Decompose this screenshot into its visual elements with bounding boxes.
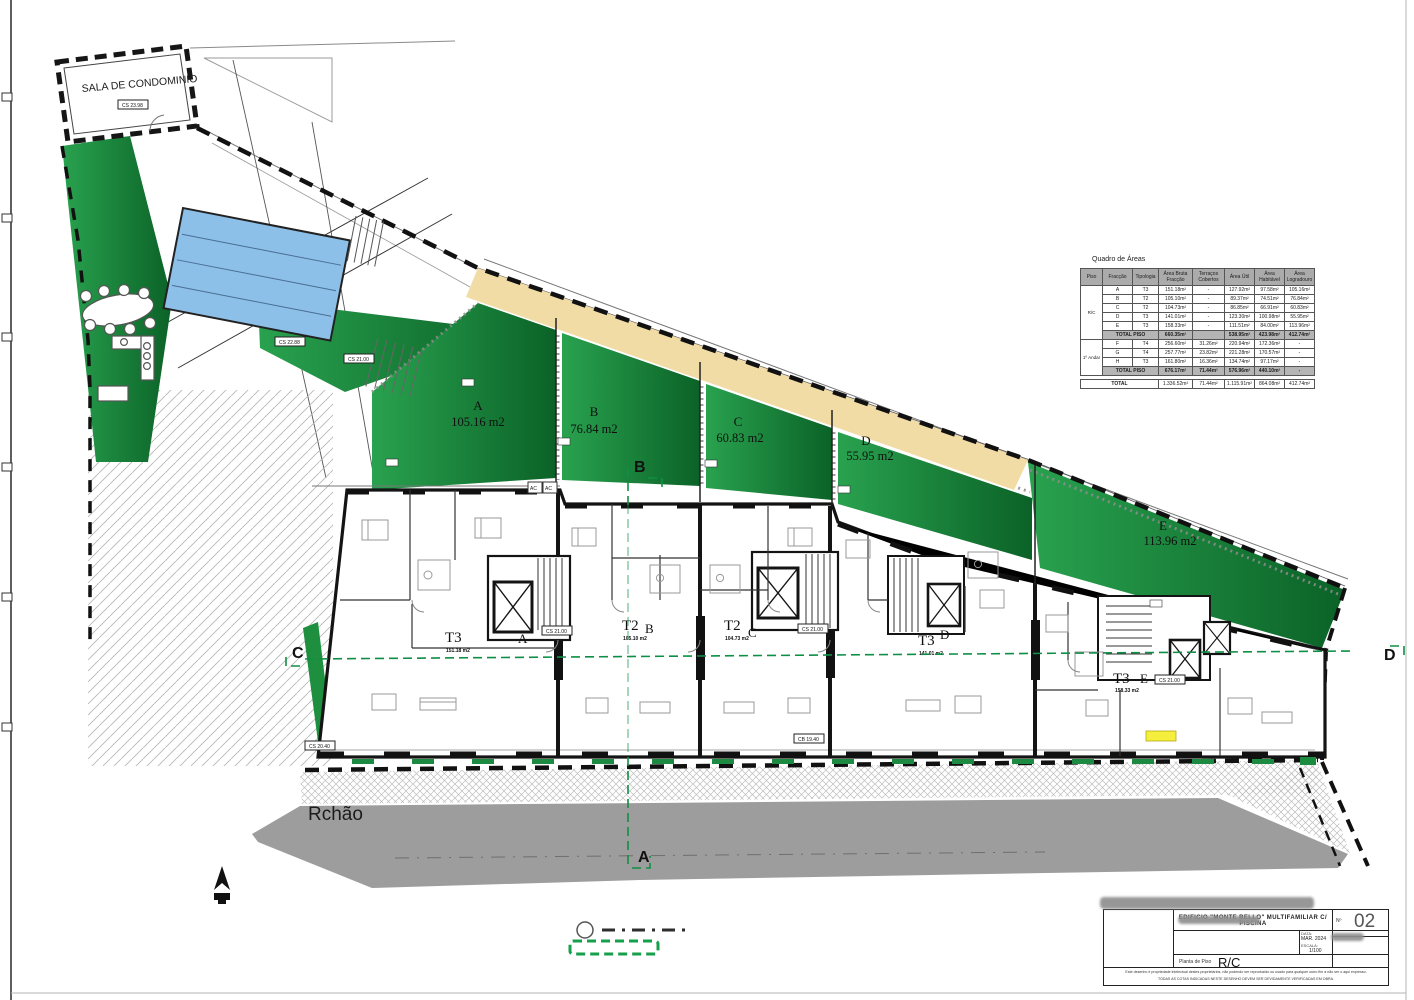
legend-circle-symbol [577,922,593,938]
condo-room: SALA DE CONDOMINIO [57,46,198,142]
highlight-yellow [1146,731,1176,741]
areas-header-cell: Terraços Cobertos [1193,269,1225,286]
areas-cell: 113.96m² [1285,322,1315,331]
areas-cell: 676.17m² [1159,367,1193,376]
areas-cell: 220.94m² [1225,340,1255,349]
unit-d-type: T3 [918,633,935,649]
areas-cell: C [1103,304,1133,313]
areas-cell: B [1103,295,1133,304]
areas-header-cell: Fracção [1103,269,1133,286]
areas-cell: - [1285,340,1315,349]
total-row: TOTAL PISO676.17m²71.44m²576.96m²440.10m… [1081,367,1315,376]
areas-cell: 412.74m² [1285,331,1315,340]
drawing-type-label: Planta de Piso [1179,959,1211,965]
table-row: HT3161.80m²16.36m²134.74m²97.17m²- [1081,358,1315,367]
areas-cell: 23.82m² [1193,349,1225,358]
areas-cell: 134.74m² [1225,358,1255,367]
garden-e-area: 113.96 m2 [1143,534,1196,548]
garden-d-area: 55.95 m2 [846,449,893,463]
areas-cell: 538.95m² [1225,331,1255,340]
street-label: Rchão [308,804,363,825]
table-row: CT2104.73m²-86.85m²66.91m²60.83m² [1081,304,1315,313]
unit-c-letter: C [748,625,757,640]
legend-planter-symbol [570,941,658,954]
areas-cell: T3 [1133,286,1159,295]
areas-cell: 86.85m² [1225,304,1255,313]
areas-cell: 123.30m² [1225,313,1255,322]
table-row: R/CAT3151.18m²-127.92m²97.58m²105.16m² [1081,286,1315,295]
piso-cell: R/C [1081,286,1103,340]
areas-cell: 111.51m² [1225,322,1255,331]
areas-cell: G [1103,349,1133,358]
unit-c-area: 104.73 m2 [725,636,749,642]
smudge-blob [1178,916,1260,924]
garden-c-letter: C [734,414,743,429]
areas-header-cell: Área Útil [1225,269,1255,286]
garden-d-letter: D [861,433,870,448]
areas-cell: - [1193,322,1225,331]
areas-header-cell: Área Bruta Fracção [1159,269,1193,286]
ac-label-2: AC [545,486,552,492]
piso-cell: 1º Andar [1081,340,1103,376]
areas-cell: 170.57m² [1255,349,1285,358]
areas-grand-total: TOTAL1.336.52m²71.44m²1.115.91m²864.08m²… [1080,379,1314,389]
areas-cell: - [1285,349,1315,358]
unit-a-type: T3 [445,630,462,646]
garden-e-letter: E [1159,518,1167,533]
areas-cell: - [1193,295,1225,304]
areas-cell: 412.74m² [1285,380,1315,389]
grand-total-row: TOTAL1.336.52m²71.44m²1.115.91m²864.08m²… [1081,380,1315,389]
date-value: MAR. 2024 [1301,936,1326,942]
badge-unit-a: CS 21.00 [546,629,567,635]
section-marker-left: C [292,645,304,662]
badge-pool: CS 22.88 [279,340,300,346]
disclaimer-line-2: TODAS AS COTAS INDICADAS NESTE DESENHO D… [1104,975,1388,982]
table-row: DT3141.01m²-123.30m²100.98m²55.95m² [1081,313,1315,322]
areas-cell: 141.01m² [1159,313,1193,322]
areas-table-title: Quadro de Áreas [1092,256,1145,263]
areas-cell: T2 [1133,304,1159,313]
areas-cell: 66.91m² [1255,304,1285,313]
areas-cell: T4 [1133,349,1159,358]
areas-header-cell: Área Logradouro [1285,269,1315,286]
areas-cell: 89.37m² [1225,295,1255,304]
areas-cell: 660.35m² [1159,331,1193,340]
unit-a-letter: A [518,631,528,646]
pool-steps [347,216,383,266]
areas-cell: T3 [1133,358,1159,367]
areas-cell: D [1103,313,1133,322]
unit-e-type: T3 [1113,671,1130,687]
areas-header-cell: Área Habitável [1255,269,1285,286]
areas-cell: 576.96m² [1225,367,1255,376]
disclaimer-line-1: Este desenho é propriedade intelectual d… [1104,968,1388,975]
areas-cell: 864.08m² [1255,380,1285,389]
badge-unit-e: CS 21.00 [1159,678,1180,684]
drawing-sheet: Rchão SALA DE CONDOMINIO [0,0,1414,1000]
stair-core-e [1098,596,1230,680]
areas-cell: 60.83m² [1285,304,1315,313]
areas-cell: H [1103,358,1133,367]
areas-cell: 158.33m² [1159,322,1193,331]
unit-d-letter: D [940,627,949,642]
areas-cell: - [1193,286,1225,295]
smudge-blob [1331,933,1364,941]
areas-cell: 55.95m² [1285,313,1315,322]
areas-cell [1193,331,1225,340]
areas-header-cell: Piso [1081,269,1103,286]
table-row: ET3158.33m²-111.51m²84.00m²113.96m² [1081,322,1315,331]
badge-left-edge: CS 20.40 [309,744,330,750]
areas-cell: 221.28m² [1225,349,1255,358]
areas-cell: F [1103,340,1133,349]
areas-cell: 74.51m² [1255,295,1285,304]
areas-cell: 161.80m² [1159,358,1193,367]
unit-a-area: 151.18 m2 [446,648,470,654]
section-marker-top: B [634,459,646,476]
badge-street: CB 19.40 [798,737,819,743]
areas-cell: 84.00m² [1255,322,1285,331]
garden-c-area: 60.83 m2 [716,431,763,445]
unit-c-type: T2 [724,618,741,634]
areas-cell: 104.73m² [1159,304,1193,313]
table-row: GT4257.77m²23.82m²221.28m²170.57m²- [1081,349,1315,358]
areas-cell: T2 [1133,295,1159,304]
areas-cell: - [1285,358,1315,367]
areas-cell: T4 [1133,340,1159,349]
unit-e-area: 158.33 m2 [1115,688,1139,694]
smudge-blob [1100,897,1314,909]
garden-b-letter: B [590,404,599,419]
legend [570,922,685,954]
sheet-number: 02 [1354,911,1375,933]
stair-core-bc [752,552,838,630]
north-arrow-icon [214,866,230,904]
areas-cell: 172.36m² [1255,340,1285,349]
areas-cell: 1.115.91m² [1225,380,1255,389]
stair-core-d [888,556,964,634]
badge-unit-c: CS 21.00 [802,627,823,633]
areas-cell: 100.98m² [1255,313,1285,322]
areas-cell: 127.92m² [1225,286,1255,295]
garden-b-area: 76.84 m2 [570,422,617,436]
areas-cell: - [1193,304,1225,313]
areas-cell: T3 [1133,322,1159,331]
unit-e-letter: E [1140,671,1148,686]
areas-cell: 76.84m² [1285,295,1315,304]
unit-b-area: 105.10 m2 [623,636,647,642]
road: Rchão [252,798,1348,888]
areas-cell: 105.16m² [1285,286,1315,295]
garden-a-letter: A [473,398,483,413]
ac-label-1: AC [530,486,537,492]
areas-cell: 423.98m² [1255,331,1285,340]
areas-cell: 151.18m² [1159,286,1193,295]
areas-cell: 97.17m² [1255,358,1285,367]
areas-cell: 1.336.52m² [1159,380,1193,389]
badge-sala: CS 23.98 [122,103,143,109]
sheet-number-label: Nº [1336,918,1341,924]
areas-header-cell: Tipologia [1133,269,1159,286]
section-marker-bottom: A [638,849,650,866]
areas-cell: 256.60m² [1159,340,1193,349]
unit-b-letter: B [645,621,654,636]
areas-cell: 105.10m² [1159,295,1193,304]
unit-b-type: T2 [622,618,639,634]
garden-a-area: 105.16 m2 [451,415,504,429]
table-row: BT2105.10m²-89.37m²74.51m²76.84m² [1081,295,1315,304]
areas-cell: E [1103,322,1133,331]
areas-cell: 440.10m² [1255,367,1285,376]
ac-units: AC AC [528,482,557,493]
areas-cell: A [1103,286,1133,295]
site-plan-svg: Rchão SALA DE CONDOMINIO [0,0,1414,1000]
badge-walkway: CS 21.00 [348,357,369,363]
section-marker-right: D [1384,647,1396,664]
total-row: TOTAL PISO660.35m²538.95m²423.98m²412.74… [1081,331,1315,340]
disclaimer-bar: Este desenho é propriedade intelectual d… [1103,967,1389,986]
areas-cell: 71.44m² [1193,367,1225,376]
areas-table: PisoFracçãoTipologiaÁrea Bruta FracçãoTe… [1080,268,1314,376]
table-row: 1º AndarFT4256.60m²31.26m²220.94m²172.36… [1081,340,1315,349]
areas-cell: T3 [1133,313,1159,322]
areas-cell: 71.44m² [1193,380,1225,389]
areas-cell: 31.26m² [1193,340,1225,349]
areas-cell: 16.36m² [1193,358,1225,367]
scale-value: 1/100 [1309,948,1322,954]
areas-cell: 257.77m² [1159,349,1193,358]
areas-cell: - [1193,313,1225,322]
areas-cell: 97.58m² [1255,286,1285,295]
areas-cell: - [1285,367,1315,376]
